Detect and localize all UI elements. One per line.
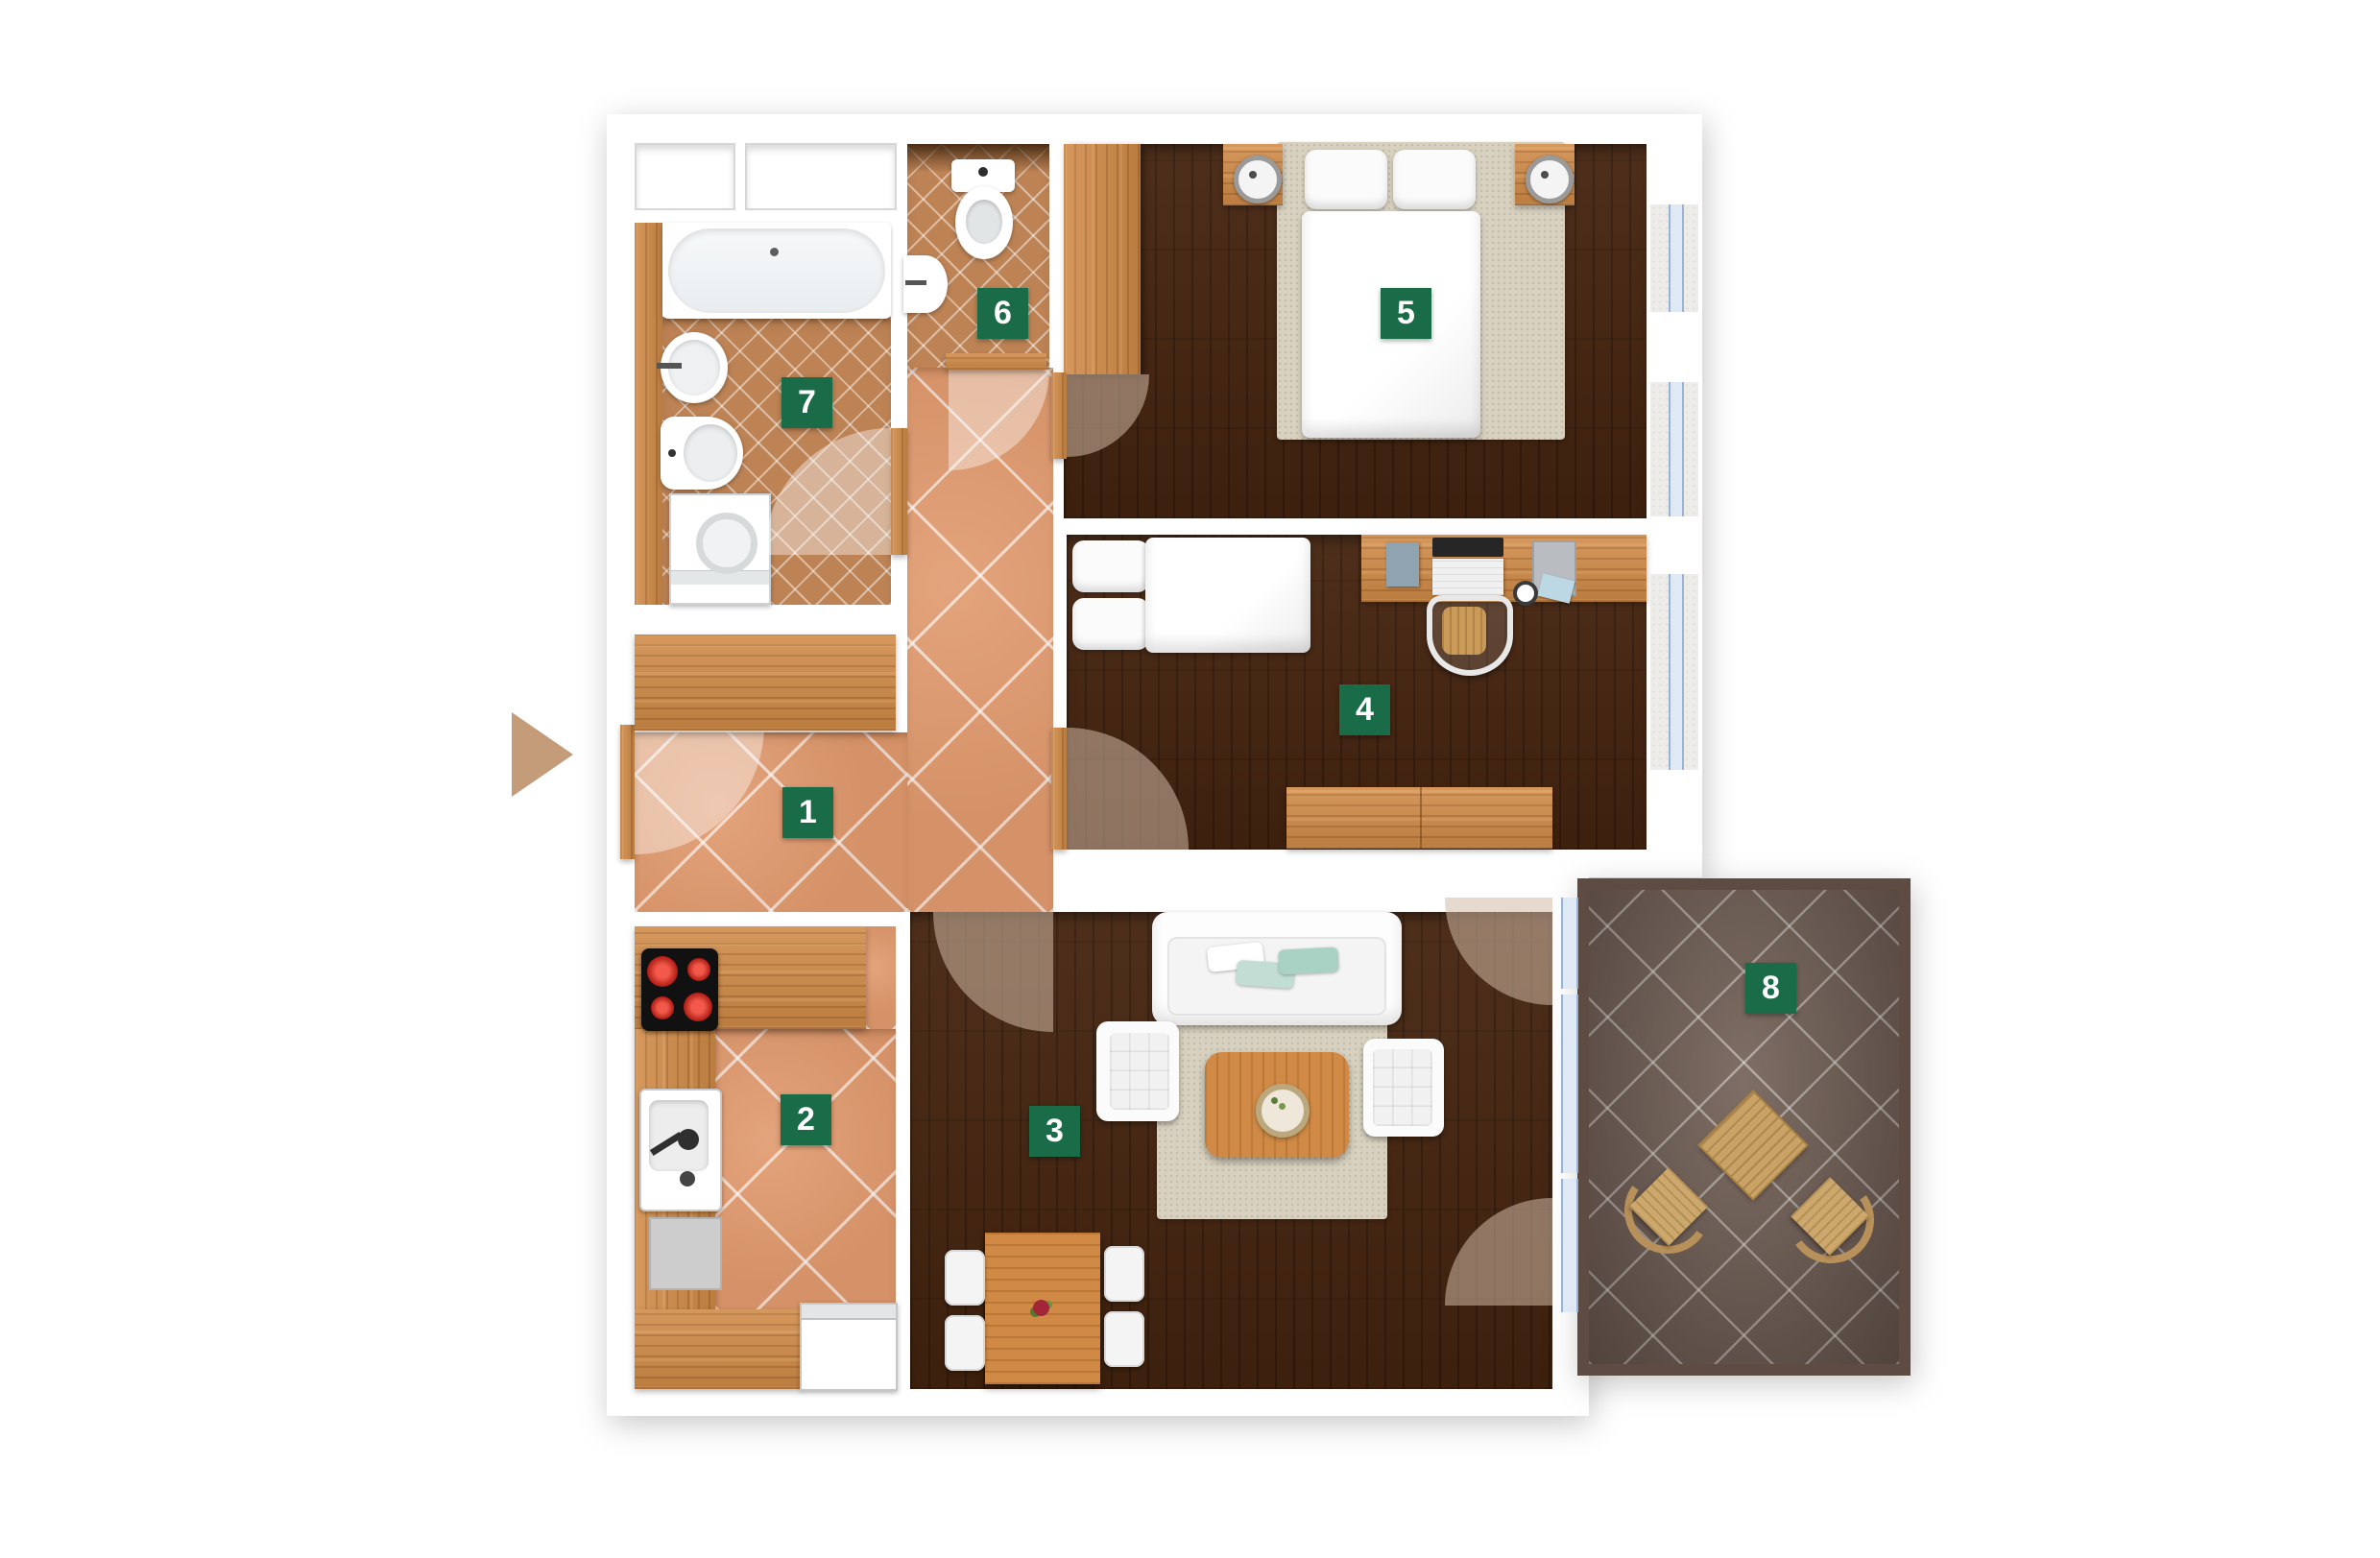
bathroom-wall-strip	[635, 223, 662, 605]
toilet-flush-button	[978, 167, 988, 177]
armchair-right	[1363, 1039, 1444, 1137]
dishwasher	[800, 1303, 898, 1391]
balcony-glazing-middle	[1561, 995, 1578, 1173]
wc-sink-faucet	[905, 280, 926, 285]
desk-book	[1386, 542, 1419, 587]
armchair-left	[1096, 1021, 1179, 1121]
wc-door-threshold	[946, 353, 1046, 370]
burner	[651, 996, 674, 1019]
desk	[1361, 535, 1647, 602]
sofa-pillow-teal-2	[1278, 947, 1338, 974]
office-chair-seat	[1442, 607, 1486, 655]
lamp-right	[1526, 156, 1574, 204]
balcony-chair-left	[1624, 1167, 1711, 1254]
bed-pillow-right	[1393, 150, 1476, 209]
dining-chair	[945, 1315, 985, 1371]
kitchen-floor-top-right	[866, 926, 896, 1029]
bedroom4-dresser	[1286, 787, 1552, 849]
bedroom4-door-threshold	[1051, 728, 1067, 850]
window-bedroom5-bottom	[1650, 382, 1698, 516]
window-glass	[1669, 574, 1684, 770]
coffee-cup	[1513, 581, 1538, 606]
kitchen-counter-bottom	[635, 1309, 802, 1389]
balcony-glazing-bottom	[1561, 1179, 1578, 1312]
room-label-kitchen: 2	[781, 1094, 831, 1145]
bathroom-sink-faucet	[657, 363, 682, 369]
sofa	[1152, 912, 1402, 1025]
decor-bowl	[1256, 1084, 1310, 1138]
burner	[687, 958, 710, 981]
dresser-divider	[1420, 787, 1422, 849]
bowl-plant	[1279, 1103, 1286, 1110]
bidet-button	[668, 449, 676, 457]
table-flower	[1033, 1300, 1049, 1316]
hallway-sideboard	[635, 635, 896, 731]
dining-chair	[1104, 1246, 1144, 1302]
floor-plan-page: 1 2 3 4 5 6 7 8	[0, 0, 2380, 1558]
window-glass	[1669, 382, 1684, 516]
wall-niche-left	[635, 143, 735, 210]
bed-pillow-left	[1305, 150, 1387, 209]
single-bed	[1067, 535, 1315, 658]
room-label-balcony: 8	[1745, 963, 1796, 1014]
burner	[684, 993, 712, 1021]
bathtub-drain	[770, 248, 779, 256]
single-bed-duvet	[1145, 538, 1310, 653]
balcony-chair-right	[1788, 1177, 1874, 1263]
kitchen-appliance-front	[649, 1217, 722, 1290]
cooktop	[641, 948, 718, 1031]
armchair-right-cushion	[1373, 1049, 1432, 1126]
bathtub-rim	[668, 228, 885, 313]
single-bed-pillow-top	[1072, 540, 1149, 592]
entrance-door-threshold	[620, 725, 635, 859]
dining-chair	[945, 1250, 985, 1306]
bidet	[661, 417, 743, 490]
lamp-left	[1234, 156, 1282, 204]
room-label-living-room: 3	[1029, 1106, 1080, 1157]
kitchen-floor	[715, 1029, 896, 1309]
bedroom5-door-threshold	[1051, 372, 1067, 459]
armchair-left-cushion	[1110, 1033, 1169, 1110]
washing-machine-drum	[696, 513, 757, 574]
bedroom5-wardrobe	[1064, 144, 1141, 374]
bidet-bowl	[684, 424, 737, 482]
wall-niche-right	[745, 143, 897, 210]
toilet-bowl	[955, 186, 1013, 259]
room-label-wc: 6	[977, 288, 1028, 339]
room-label-hallway: 1	[782, 787, 833, 838]
kitchen-sink	[639, 1089, 722, 1211]
laptop-lid	[1432, 538, 1503, 557]
room-label-bedroom: 5	[1381, 288, 1431, 339]
laptop-keyboard	[1432, 559, 1503, 595]
balcony-glazing-top	[1561, 898, 1578, 989]
window-bedroom4	[1650, 574, 1698, 770]
washing-machine	[669, 493, 771, 605]
wc-corner-sink	[903, 255, 948, 313]
dining-chair	[1104, 1311, 1144, 1367]
bowl-plant	[1271, 1097, 1278, 1104]
room-label-bedroom-study: 4	[1339, 684, 1390, 735]
window-bedroom5-top	[1650, 204, 1698, 312]
kitchen-faucet	[678, 1129, 699, 1150]
room-label-bathroom: 7	[781, 377, 832, 428]
bathtub	[662, 223, 891, 319]
coffee-table	[1205, 1052, 1349, 1158]
bathroom-door-threshold	[891, 428, 907, 555]
toilet-bowl-inner	[966, 200, 1002, 244]
dining-table	[985, 1233, 1100, 1384]
window-glass	[1669, 204, 1684, 312]
single-bed-pillow-bottom	[1072, 598, 1149, 650]
office-chair	[1427, 595, 1513, 676]
burner	[647, 956, 678, 987]
dishwasher-handle	[802, 1305, 896, 1320]
kitchen-sink-drain	[680, 1171, 695, 1186]
bathroom-sink	[661, 332, 728, 403]
